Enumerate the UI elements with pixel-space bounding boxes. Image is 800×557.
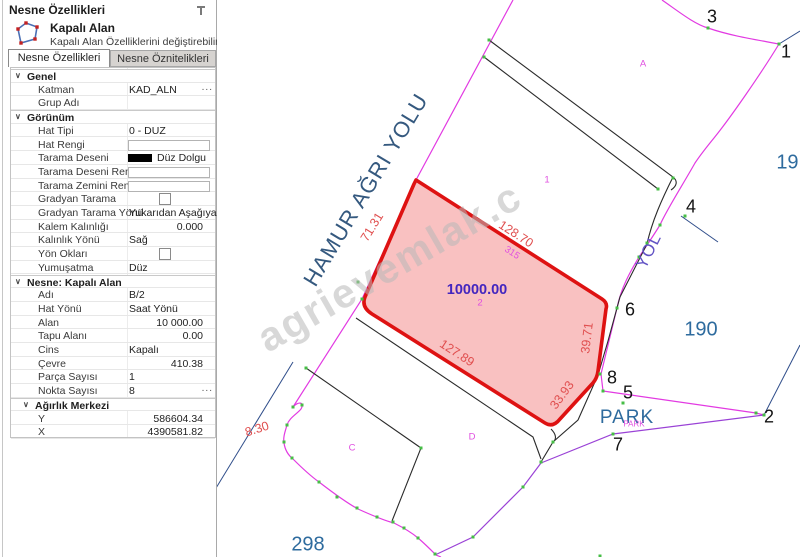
vertex-node (301, 404, 304, 407)
property-value[interactable]: 4390581.82 (148, 426, 203, 438)
parcel-number-label: 2 (477, 298, 482, 309)
point-label: 7 (613, 435, 623, 456)
parcel-letter-label: A (640, 59, 646, 70)
property-row[interactable]: YumuşatmaDüz (11, 261, 215, 275)
point-label: 1 (781, 42, 791, 63)
properties-panel: Nesne Özellikleri Kapalı Alan Kapalı Ala… (0, 0, 217, 557)
property-label: Tarama Deseni (38, 152, 109, 164)
section-header[interactable]: ∨Nesne: Kapalı Alan (11, 275, 215, 289)
ellipsis-button[interactable]: ... (202, 82, 213, 93)
vertex-node (434, 553, 437, 556)
chevron-down-icon[interactable]: ∨ (15, 71, 21, 80)
point-label: 8 (607, 368, 617, 389)
section-label: Ağırlık Merkezi (35, 400, 109, 412)
property-row[interactable]: AdıB/2 (11, 288, 215, 302)
property-row[interactable]: Tarama Zemini Rengi (11, 179, 215, 193)
property-value[interactable]: 10 000.00 (156, 317, 203, 329)
property-label: Kalınlık Yönü (38, 234, 100, 246)
object-type-subtitle: Kapalı Alan Özelliklerini değiştirebilir… (50, 36, 243, 48)
section-label: Görünüm (27, 112, 74, 124)
property-label: Katman (38, 84, 74, 96)
property-row[interactable]: Parça Sayısı1 (11, 370, 215, 384)
property-row[interactable]: Nokta Sayısı8... (11, 384, 215, 398)
vertex-node (657, 188, 660, 191)
property-label: Hat Yönü (38, 303, 82, 315)
vertex-node (361, 298, 364, 301)
property-label: Tarama Zemini Rengi (38, 180, 138, 192)
property-label: Gradyan Tarama (38, 193, 116, 205)
property-label: Yumuşatma (38, 262, 93, 274)
property-value[interactable]: 0 - DUZ (129, 125, 166, 137)
property-row[interactable]: KatmanKAD_ALN... (11, 83, 215, 97)
property-row[interactable]: Alan10 000.00 (11, 316, 215, 330)
vertex-node (356, 507, 359, 510)
vertex-node (417, 537, 420, 540)
purple-boundaries (435, 415, 764, 555)
tab-nesne-oznitelikleri[interactable]: Nesne Öznitelikleri (110, 50, 216, 67)
section-header[interactable]: ∨Genel (11, 69, 215, 83)
object-type-title: Kapalı Alan (50, 21, 115, 35)
color-value-box[interactable] (128, 140, 210, 151)
property-row[interactable]: Grup Adı (11, 96, 215, 110)
vertex-node (420, 447, 423, 450)
property-row[interactable]: Kalem Kalınlığı0.000 (11, 220, 215, 234)
ellipsis-button[interactable]: ... (202, 383, 213, 394)
property-label: Kalem Kalınlığı (38, 221, 109, 233)
color-value-box[interactable] (128, 167, 210, 178)
property-label: Y (38, 413, 45, 425)
point-label: 6 (625, 300, 635, 321)
panel-title: Nesne Özellikleri (9, 3, 105, 17)
property-row[interactable]: Çevre410.38 (11, 357, 215, 371)
vertex-node (318, 481, 321, 484)
parcel-letter-label: C (349, 443, 356, 454)
property-label: Tapu Alanı (38, 330, 87, 342)
property-label: Çevre (38, 358, 66, 370)
dock-edge-divider (2, 0, 3, 557)
parcel-letter-label: D (469, 432, 476, 443)
section-label: Nesne: Kapalı Alan (27, 277, 122, 289)
chevron-down-icon[interactable]: ∨ (23, 400, 29, 409)
application-window: Nesne Özellikleri Kapalı Alan Kapalı Ala… (0, 0, 800, 557)
vertex-node (540, 461, 543, 464)
property-row[interactable]: Tapu Alanı0.00 (11, 329, 215, 343)
property-row[interactable]: Hat Rengi (11, 138, 215, 152)
property-row[interactable]: Hat Tipi0 - DUZ (11, 124, 215, 138)
vertex-node (659, 224, 662, 227)
property-value[interactable]: 1 (129, 371, 135, 383)
block-number-label: 190 (684, 319, 717, 342)
property-value[interactable]: Sağ (129, 234, 148, 246)
chevron-down-icon[interactable]: ∨ (15, 277, 21, 286)
parcel-number-label: 1 (544, 175, 549, 186)
property-label: Tarama Deseni Rengi (38, 166, 139, 178)
pin-icon[interactable] (195, 5, 207, 17)
property-value[interactable]: 410.38 (171, 358, 203, 370)
checkbox[interactable] (159, 193, 171, 205)
property-row[interactable]: Y586604.34 (11, 412, 215, 426)
park-small-label: PARK (623, 420, 644, 429)
property-value[interactable]: Düz (129, 262, 148, 274)
vertex-node (755, 412, 758, 415)
color-value-box[interactable] (128, 181, 210, 192)
vertex-node (472, 536, 475, 539)
property-row[interactable]: Kalınlık YönüSağ (11, 233, 215, 247)
vertex-node (483, 56, 486, 59)
vertex-node (616, 307, 619, 310)
vertex-node (602, 390, 605, 393)
fill-pattern-swatch[interactable] (128, 154, 152, 162)
property-row[interactable]: Gradyan Tarama (11, 192, 215, 206)
property-row[interactable]: Tarama Deseni Rengi (11, 165, 215, 179)
vertex-node (552, 441, 555, 444)
property-label: Adı (38, 289, 54, 301)
property-row[interactable]: Gradyan Tarama YönüYukarıdan Aşağıya (11, 206, 215, 220)
section-header[interactable]: ∨Ağırlık Merkezi (11, 398, 215, 412)
point-label: 3 (707, 7, 717, 28)
tab-nesne-ozellikleri[interactable]: Nesne Özellikleri (8, 49, 110, 67)
vertex-node (392, 521, 395, 524)
property-label: Alan (38, 317, 59, 329)
pin-icon-stem (200, 8, 202, 15)
block-number-label: 298 (291, 534, 324, 557)
property-value[interactable]: Yukarıdan Aşağıya (129, 207, 217, 219)
property-label: Nokta Sayısı (38, 385, 98, 397)
vertex-node (599, 373, 602, 376)
vertex-node (357, 281, 360, 284)
property-label: Yön Okları (38, 248, 88, 260)
property-value[interactable]: 586604.34 (153, 413, 203, 425)
vertex-node (672, 177, 675, 180)
area-value-label: 10000.00 (447, 282, 507, 298)
vertex-node (336, 496, 339, 499)
property-row[interactable]: Yön Okları (11, 247, 215, 261)
vertex-node (488, 39, 491, 42)
map-canvas[interactable]: agrievemlak.c HAMUR AĞRI YOLUYOL10000.00… (217, 0, 800, 557)
property-row[interactable]: X4390581.82 (11, 425, 215, 439)
point-label: 5 (623, 383, 633, 404)
checkbox[interactable] (159, 248, 171, 260)
property-label: Gradyan Tarama Yönü (38, 207, 143, 219)
property-row[interactable]: Tarama DeseniDüz Dolgu (11, 151, 215, 165)
vertex-node (291, 457, 294, 460)
vertex-node (522, 486, 525, 489)
property-label: X (38, 426, 45, 438)
vertex-node (286, 424, 289, 427)
property-value[interactable]: Saat Yönü (129, 303, 178, 315)
closed-area-icon (13, 20, 41, 48)
chevron-down-icon[interactable]: ∨ (15, 112, 21, 121)
block-number-label: 191 (776, 152, 800, 175)
property-label: Grup Adı (38, 97, 79, 109)
property-label: Hat Tipi (38, 125, 74, 137)
vertex-node (292, 406, 295, 409)
property-row[interactable]: Hat YönüSaat Yönü (11, 302, 215, 316)
property-value[interactable]: 0.000 (177, 221, 203, 233)
property-value[interactable]: B/2 (129, 289, 145, 301)
vertex-node (283, 441, 286, 444)
property-grid: ∨GenelKatmanKAD_ALN...Grup Adı∨GörünümHa… (10, 67, 216, 438)
vertex-node (305, 367, 308, 370)
vertex-node (376, 516, 379, 519)
property-value[interactable]: Düz Dolgu (157, 152, 206, 164)
point-label: 4 (686, 197, 696, 218)
property-value[interactable]: KAD_ALN (129, 84, 177, 96)
property-row[interactable]: CinsKapalı (11, 343, 215, 357)
property-label: Parça Sayısı (38, 371, 98, 383)
point-label: 2 (764, 407, 774, 428)
section-header[interactable]: ∨Görünüm (11, 110, 215, 124)
property-label: Cins (38, 344, 59, 356)
property-label: Hat Rengi (38, 139, 85, 151)
section-label: Genel (27, 71, 56, 83)
property-value[interactable]: Kapalı (129, 344, 159, 356)
property-value[interactable]: 8 (129, 385, 135, 397)
vertex-node (403, 527, 406, 530)
property-value[interactable]: 0.00 (183, 330, 203, 342)
